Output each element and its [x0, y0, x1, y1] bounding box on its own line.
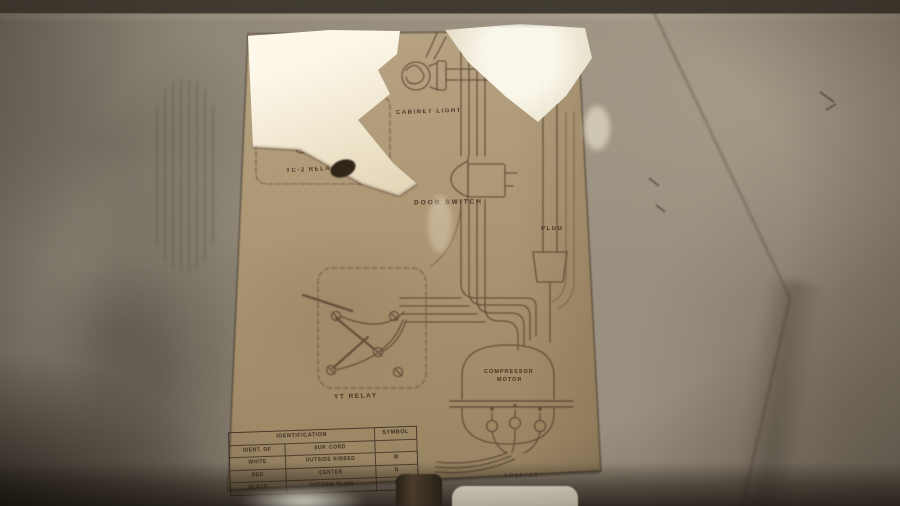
grime-blotch	[55, 250, 185, 420]
grime-streaks	[150, 80, 220, 270]
torn-paper-bit	[584, 106, 610, 150]
panel-top-seam	[0, 0, 900, 14]
dark-pipe	[396, 474, 442, 506]
torn-paper-bit	[428, 195, 452, 253]
bottom-shadow-band	[0, 462, 900, 506]
photo-appliance-back-panel: YC-2 RELAY CABINET LIGHT DOOR SWITCH PLU…	[0, 0, 900, 506]
lower-sticker	[452, 486, 578, 506]
panel-top-highlight	[0, 14, 900, 20]
